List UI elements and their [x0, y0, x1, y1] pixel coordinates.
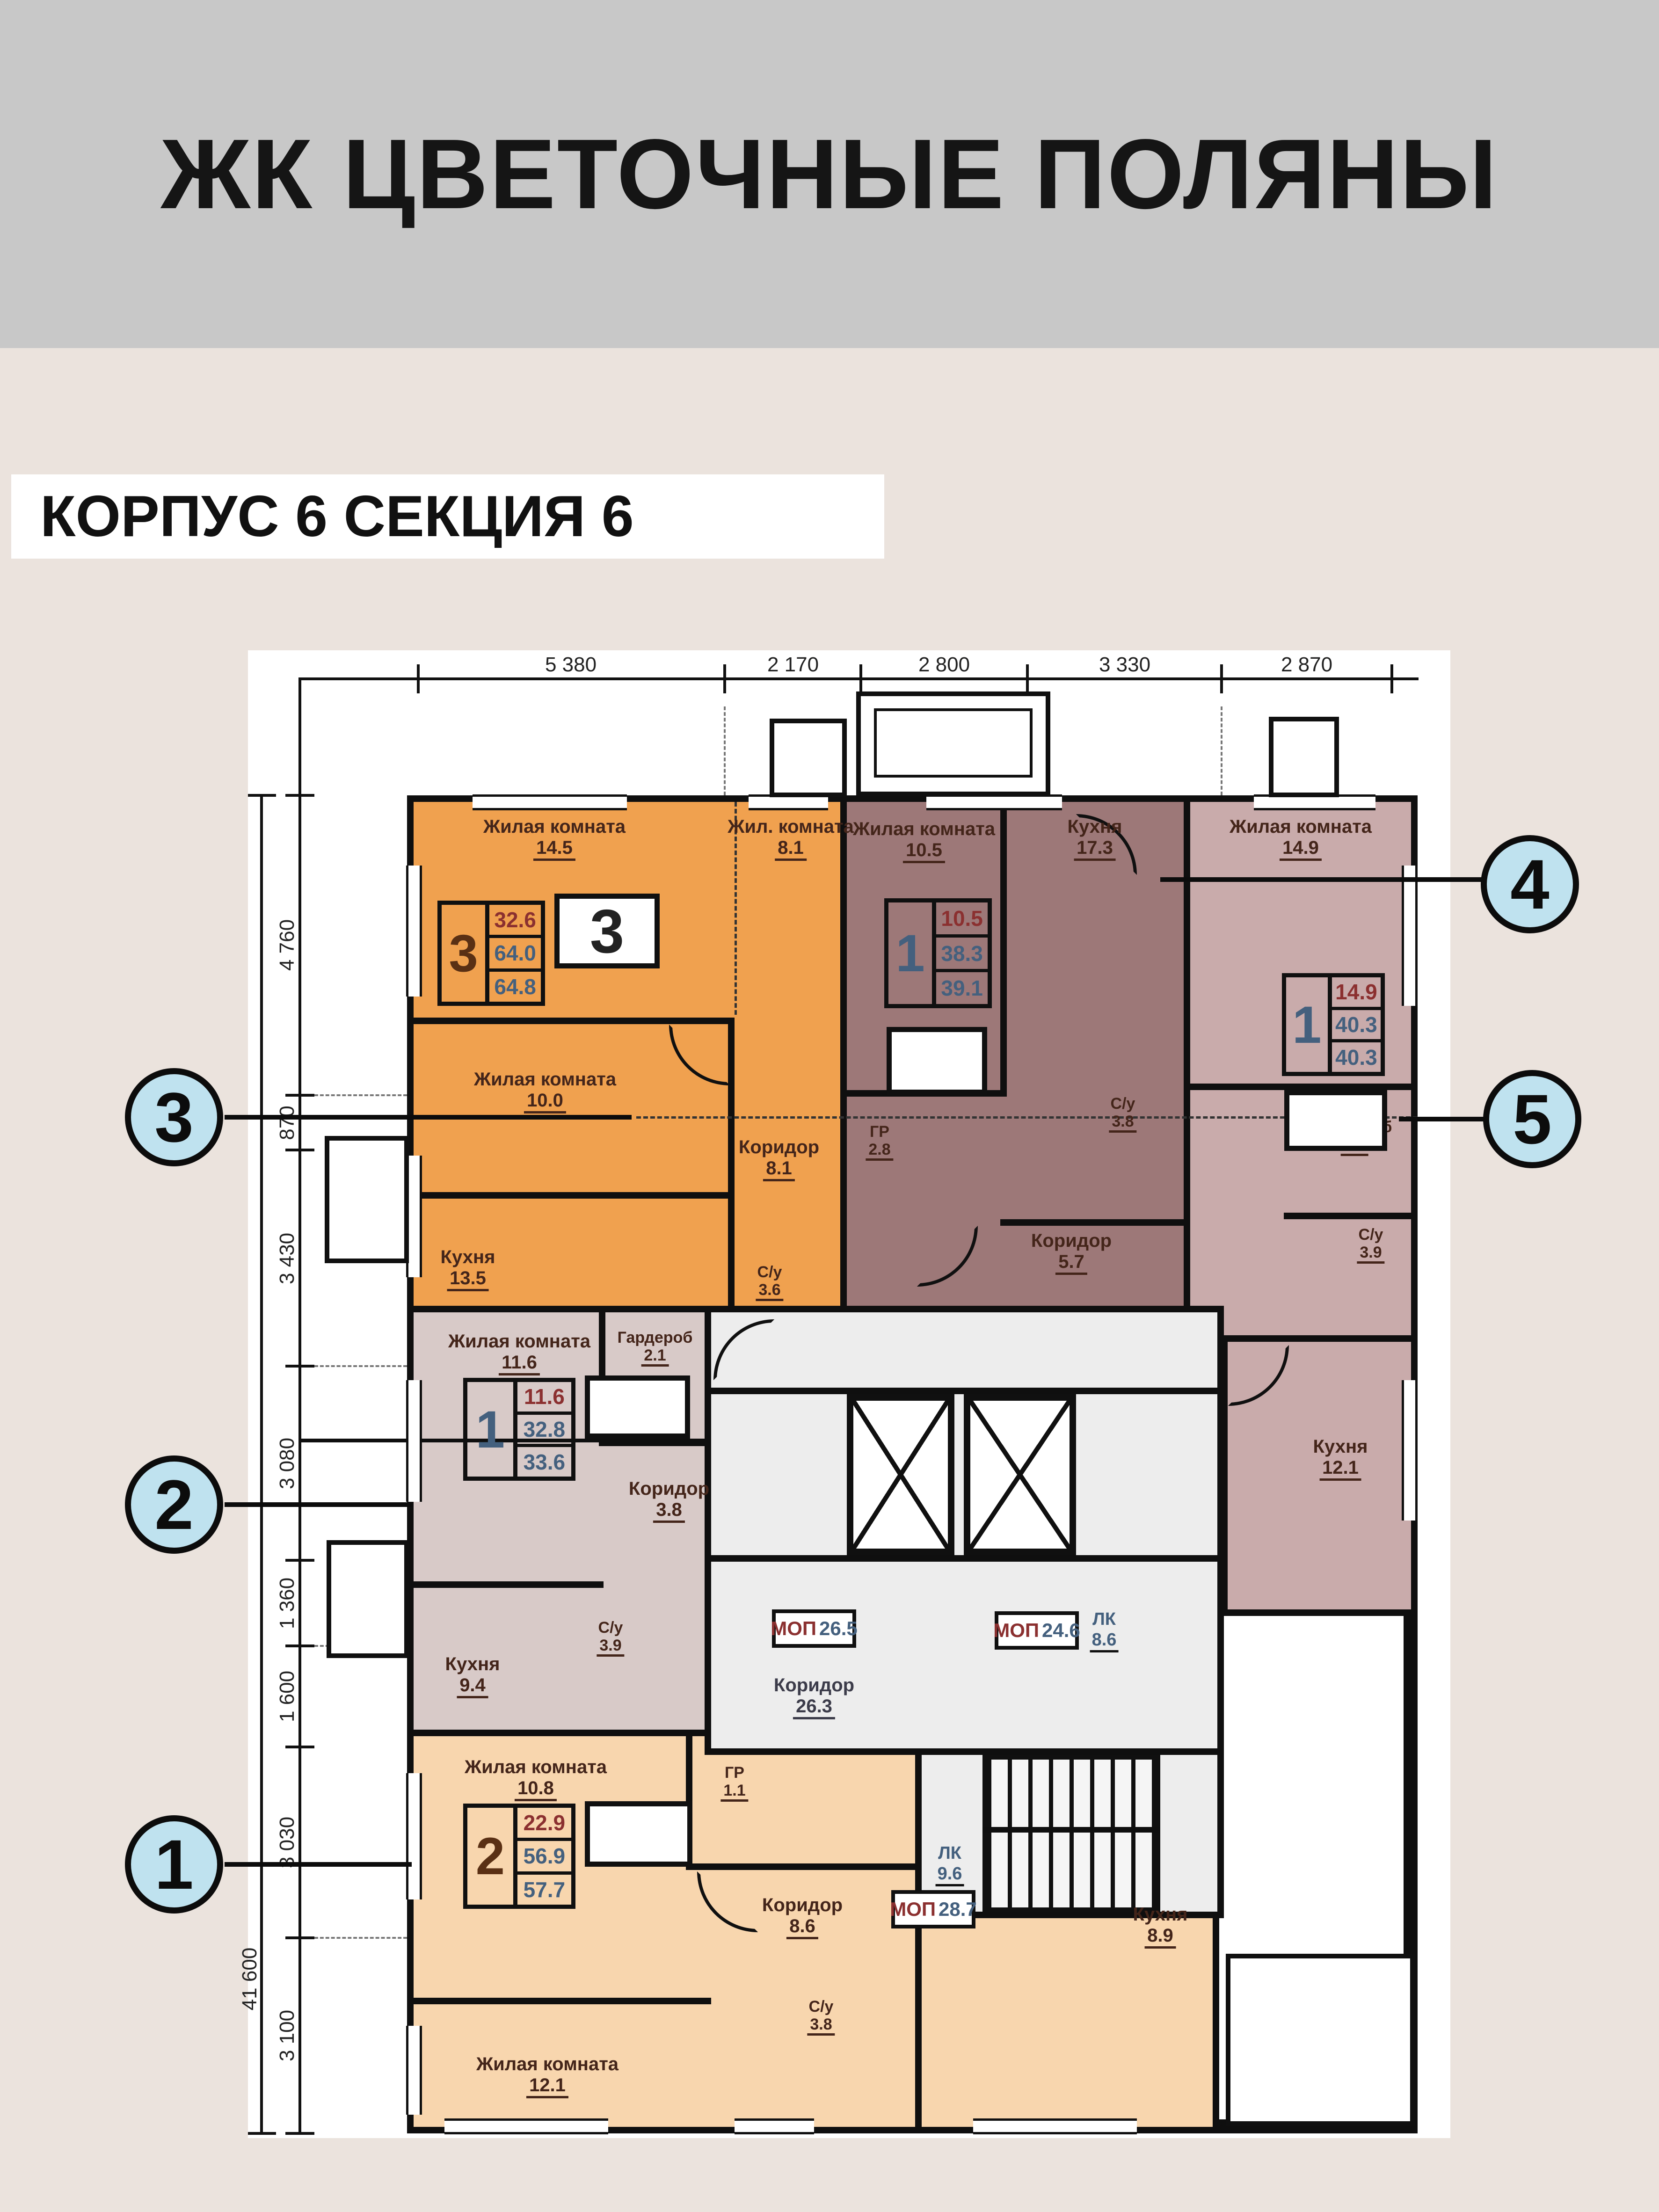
wall — [407, 1998, 711, 2004]
dim-left-1: 4 760 — [276, 919, 299, 971]
elevator-shaft — [964, 1394, 1076, 1555]
dim-tick — [285, 794, 314, 797]
dim-left-5: 1 360 — [276, 1578, 299, 1629]
elevator-shaft — [847, 1394, 954, 1555]
room-label: Жилая комната10.5 — [853, 819, 995, 863]
wall — [1284, 1213, 1418, 1219]
mop-label-left: МОП26.5 — [772, 1609, 856, 1648]
dimension-line-left-total — [260, 795, 263, 2133]
dim-tick — [1390, 664, 1393, 693]
subtitle-box: КОРПУС 6 СЕКЦИЯ 6 — [11, 474, 884, 559]
apartment-2-info: 1 11.6 32.8 33.6 — [463, 1378, 575, 1481]
dim-left-6: 1 600 — [276, 1671, 299, 1722]
witness-line — [314, 1094, 407, 1096]
apartment-3-region[interactable] — [407, 795, 847, 1312]
dim-left-8: 3 100 — [276, 2010, 299, 2061]
corridor-label: Коридор26.3 — [774, 1675, 854, 1719]
dim-top-3: 2 800 — [918, 653, 970, 677]
dimension-line-top — [299, 677, 1419, 680]
room-label: С/у3.6 — [756, 1263, 783, 1301]
wall — [407, 1018, 735, 1024]
staircase — [982, 1755, 1160, 1912]
dim-tick — [285, 1149, 314, 1151]
dimension-line-left — [298, 677, 301, 2133]
balcony — [325, 1136, 409, 1263]
dim-tick — [248, 794, 276, 797]
dim-top-5: 2 870 — [1281, 653, 1332, 677]
dim-left-3: 3 430 — [276, 1233, 299, 1284]
wall — [407, 1581, 604, 1588]
witness-line — [724, 706, 726, 795]
balcony — [327, 1540, 409, 1658]
flat-plan-page: { "header": { "title": "ЖК ЦВЕТОЧНЫЕ ПОЛ… — [0, 0, 1659, 2212]
room-label: С/у3.8 — [1109, 1095, 1136, 1133]
room-label: Жилая комната14.9 — [1230, 816, 1372, 861]
dim-tick — [248, 2132, 276, 2135]
callout-4[interactable]: 4 — [1481, 835, 1579, 933]
dim-left-total: 41 600 — [238, 1948, 262, 2011]
dim-top-1: 5 380 — [545, 653, 597, 677]
window — [473, 794, 627, 810]
dim-tick — [285, 1936, 314, 1939]
callout-3-leader — [225, 1115, 632, 1120]
witness-line — [314, 1365, 407, 1367]
apartment-3-number-plate: 3 — [554, 894, 660, 968]
room-label: Коридор3.8 — [629, 1478, 709, 1523]
dim-tick — [285, 1644, 314, 1647]
mop-label-right: МОП24.6 — [995, 1611, 1079, 1650]
wall — [1184, 1084, 1418, 1090]
dim-top-2: 2 170 — [767, 653, 819, 677]
balcony — [856, 691, 1050, 796]
window — [406, 1773, 422, 1899]
room-label: Кухня9.4 — [445, 1654, 500, 1698]
wall — [705, 1555, 1224, 1562]
room-label: Кухня13.5 — [441, 1247, 495, 1291]
apartment-1-info: 2 22.9 56.9 57.7 — [463, 1804, 575, 1909]
room-label: ГР1.1 — [720, 1764, 748, 1802]
callout-1[interactable]: 1 — [125, 1815, 223, 1914]
room-label: Коридор5.7 — [1031, 1230, 1112, 1275]
witness-line — [1221, 706, 1222, 795]
page-title: ЖК ЦВЕТОЧНЫЕ ПОЛЯНЫ — [160, 117, 1498, 231]
window — [406, 1380, 422, 1502]
dim-tick — [723, 664, 726, 693]
callout-5-leader — [1399, 1117, 1488, 1121]
callout-4-leader — [1160, 877, 1483, 882]
room-label: Кухня12.1 — [1313, 1436, 1368, 1481]
wall — [407, 1192, 735, 1199]
room-label: Жилая комната10.8 — [465, 1757, 607, 1801]
apartment-1-number-plate — [585, 1801, 692, 1867]
dim-tick — [859, 664, 862, 693]
dim-tick — [1026, 664, 1029, 693]
dim-tick — [285, 1559, 314, 1562]
callout-2-leader — [225, 1502, 412, 1507]
balcony-inner — [874, 708, 1033, 778]
room-label: Жилая комната14.5 — [483, 816, 626, 861]
callout-1-leader — [225, 1862, 412, 1867]
room-label: Жил. комната8.1 — [728, 816, 854, 861]
room-label: Жилая комната11.6 — [448, 1331, 590, 1375]
stair-label-upper: ЛК8.6 — [1090, 1609, 1119, 1652]
dim-left-4: 3 080 — [276, 1438, 299, 1489]
header-band: ЖК ЦВЕТОЧНЫЕ ПОЛЯНЫ — [0, 0, 1659, 348]
room-label: Кухня8.9 — [1133, 1904, 1188, 1949]
dim-tick — [285, 2132, 314, 2135]
stair-label-lower: ЛК9.6 — [936, 1843, 964, 1886]
room-label: С/у3.9 — [1357, 1226, 1384, 1264]
window — [406, 866, 422, 997]
dim-left-7: 3 030 — [276, 1817, 299, 1868]
apartment-2-number-plate — [585, 1375, 690, 1439]
window — [1402, 866, 1418, 1006]
window — [926, 794, 1062, 810]
dim-tick — [1220, 664, 1223, 693]
room-label: Кухня17.3 — [1068, 816, 1122, 861]
wall — [705, 1388, 1224, 1394]
wall — [686, 1863, 922, 1870]
room-label: С/у3.9 — [597, 1619, 624, 1657]
wall — [1000, 1219, 1190, 1226]
room-label: Коридор8.1 — [739, 1137, 819, 1181]
apartment-4-number-plate — [887, 1027, 987, 1095]
callout-2[interactable]: 2 — [125, 1455, 223, 1554]
apartment-3-info: 3 32.6 64.0 64.8 — [437, 901, 545, 1006]
witness-line — [314, 1937, 407, 1939]
room-label: С/у3.8 — [807, 1998, 835, 2036]
window — [973, 2118, 1137, 2134]
dim-tick — [285, 1746, 314, 1748]
room-label: Жилая комната12.1 — [476, 2054, 618, 2098]
dim-tick — [285, 1094, 314, 1097]
window — [735, 2118, 814, 2134]
dim-left-2: 870 — [276, 1106, 299, 1140]
room-label: ГР2.8 — [866, 1123, 893, 1161]
apartment-5-info: 1 14.9 40.3 40.3 — [1282, 973, 1385, 1076]
wall — [1000, 802, 1007, 1097]
room-label: Гардероб2.1 — [618, 1329, 693, 1367]
room-label: Коридор8.6 — [762, 1895, 843, 1939]
callout-3[interactable]: 3 — [125, 1068, 223, 1166]
balcony — [770, 719, 847, 797]
section-subtitle: КОРПУС 6 СЕКЦИЯ 6 — [11, 483, 634, 550]
dim-tick — [285, 1365, 314, 1368]
apartment-4-info: 1 10.5 38.3 39.1 — [884, 898, 992, 1008]
apartment-5-number-plate — [1284, 1090, 1387, 1151]
dim-tick — [417, 664, 420, 693]
mop-label-lower: МОП28.7 — [891, 1890, 975, 1928]
callout-5[interactable]: 5 — [1483, 1070, 1581, 1168]
balcony — [1269, 717, 1339, 797]
window — [1402, 1380, 1418, 1521]
window — [406, 2026, 422, 2115]
room-label: Жилая комната10.0 — [474, 1069, 616, 1113]
stair-landing-line — [982, 1827, 1160, 1833]
dim-top-4: 3 330 — [1099, 653, 1150, 677]
window — [444, 2118, 608, 2134]
balcony — [1226, 1954, 1415, 2126]
